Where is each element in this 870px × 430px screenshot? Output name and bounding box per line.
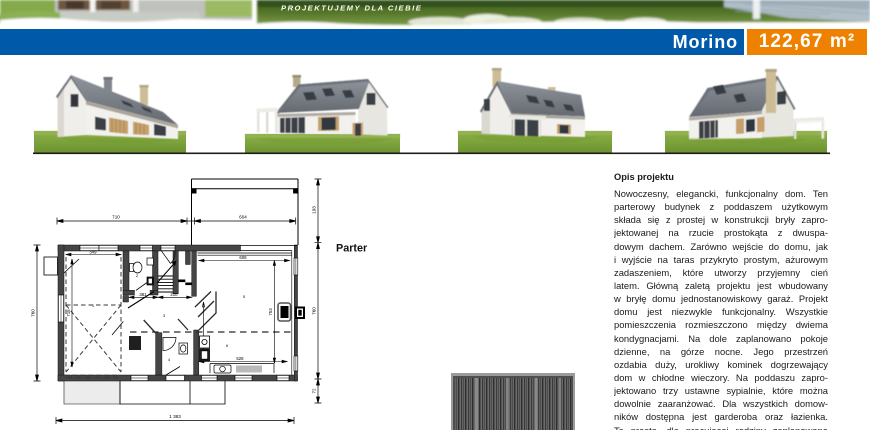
svg-text:1 383: 1 383 bbox=[169, 414, 181, 419]
svg-text:210: 210 bbox=[170, 292, 178, 297]
svg-text:528: 528 bbox=[236, 356, 244, 361]
svg-text:715: 715 bbox=[66, 309, 71, 317]
svg-text:760: 760 bbox=[312, 307, 317, 315]
svg-text:604: 604 bbox=[239, 215, 247, 220]
svg-text:2: 2 bbox=[136, 274, 138, 278]
svg-text:760: 760 bbox=[31, 309, 36, 317]
svg-text:193: 193 bbox=[312, 206, 317, 214]
svg-text:PROJEKTUJEMY DLA CIEBIE: PROJEKTUJEMY DLA CIEBIE bbox=[281, 4, 422, 13]
svg-text:608: 608 bbox=[239, 255, 247, 260]
svg-text:Parter: Parter bbox=[336, 243, 368, 255]
svg-text:381: 381 bbox=[139, 292, 147, 297]
svg-text:5: 5 bbox=[243, 295, 245, 299]
svg-text:6: 6 bbox=[226, 344, 228, 348]
svg-text:1: 1 bbox=[92, 304, 94, 308]
svg-text:3: 3 bbox=[163, 314, 165, 318]
svg-text:72: 72 bbox=[312, 388, 317, 394]
svg-text:710: 710 bbox=[112, 215, 120, 220]
svg-text:349: 349 bbox=[89, 249, 97, 254]
svg-text:4: 4 bbox=[168, 358, 170, 362]
svg-text:753: 753 bbox=[268, 308, 273, 316]
